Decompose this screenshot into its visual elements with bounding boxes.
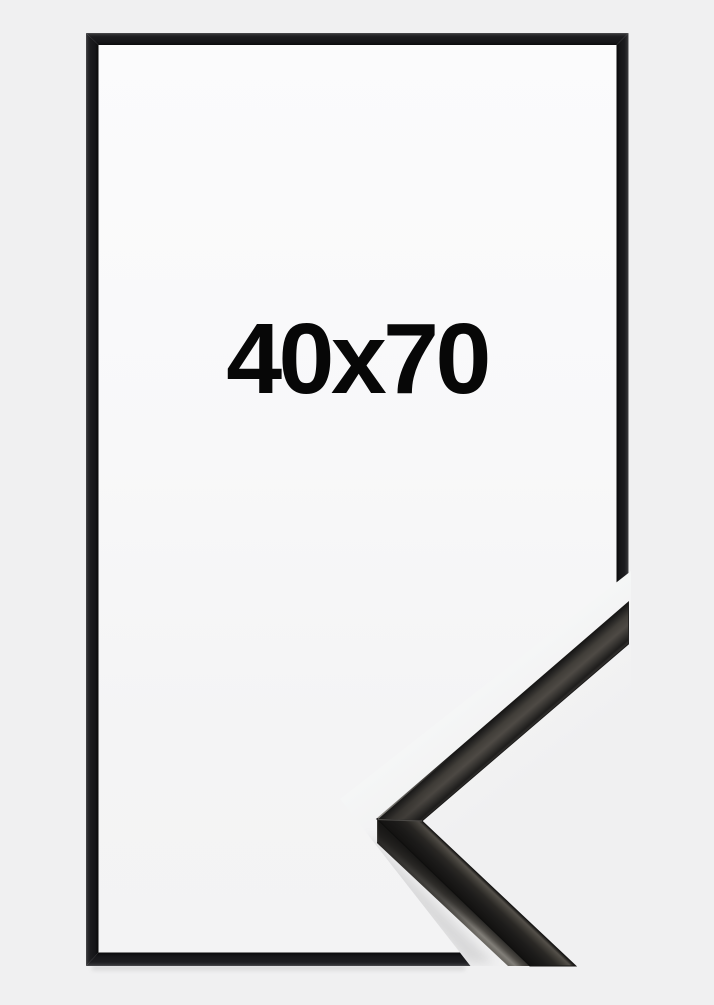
svg-text:40x70: 40x70 <box>226 303 487 415</box>
